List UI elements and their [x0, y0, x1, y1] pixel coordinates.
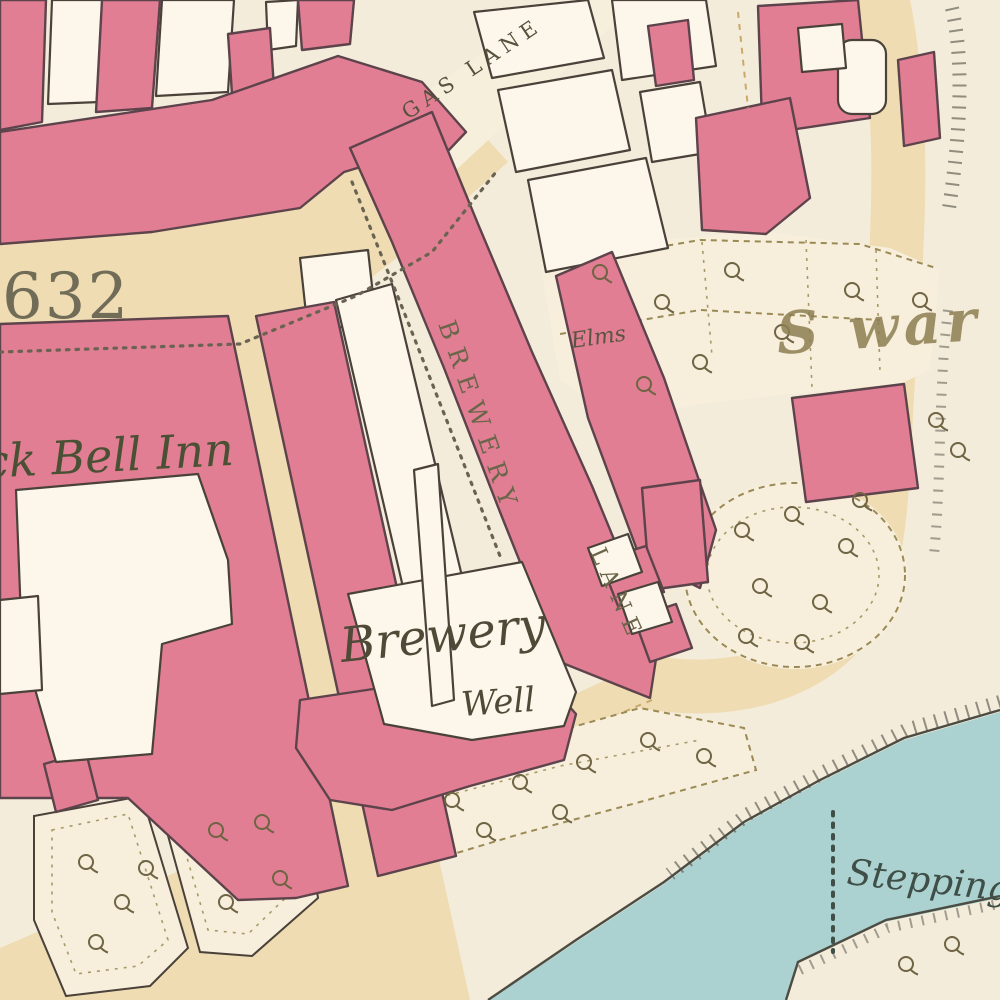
courtyard [156, 0, 234, 96]
building [898, 52, 940, 146]
courtyard [798, 24, 846, 72]
building [96, 0, 160, 112]
building [298, 0, 354, 50]
courtyard [48, 0, 104, 104]
building [0, 0, 46, 130]
plot-number-label: 632 [2, 260, 130, 334]
map-canvas[interactable]: 632 GAS LANE BREWERY LANE ck Bell Inn Br… [0, 0, 1000, 1000]
building [792, 384, 918, 502]
brewery-well-label: Well [460, 680, 537, 725]
courtyard [0, 596, 42, 694]
building [648, 20, 694, 86]
gothic-district-label: S war [774, 286, 983, 368]
